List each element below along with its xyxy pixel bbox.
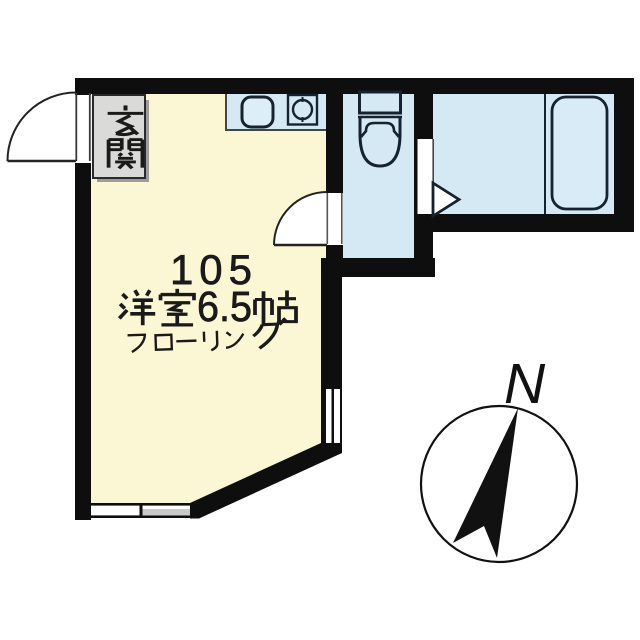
svg-text:N: N [504, 352, 546, 416]
svg-text:6.5: 6.5 [197, 283, 252, 331]
